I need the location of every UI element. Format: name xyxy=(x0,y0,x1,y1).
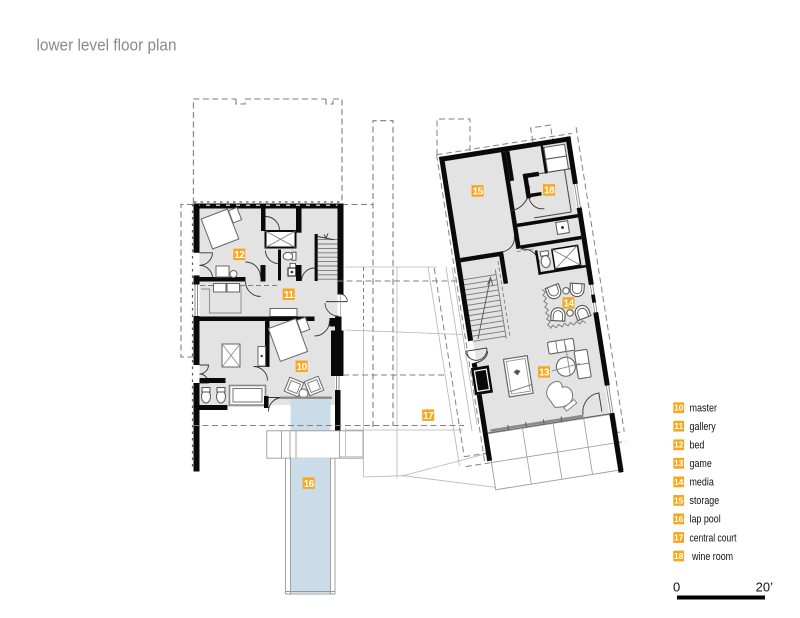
svg-text:game: game xyxy=(690,458,712,470)
svg-text:13: 13 xyxy=(674,458,684,468)
svg-text:gallery: gallery xyxy=(690,421,717,433)
svg-text:11: 11 xyxy=(284,290,295,301)
svg-text:18: 18 xyxy=(544,186,555,197)
svg-text:10: 10 xyxy=(297,362,308,373)
svg-text:14: 14 xyxy=(674,477,684,487)
svg-text:storage: storage xyxy=(690,495,720,507)
svg-text:12: 12 xyxy=(674,440,684,450)
svg-text:0: 0 xyxy=(673,580,680,595)
svg-text:15: 15 xyxy=(674,495,684,505)
svg-text:central court: central court xyxy=(690,532,737,544)
svg-text:17: 17 xyxy=(674,532,684,542)
svg-text:16: 16 xyxy=(304,479,315,490)
svg-text:10: 10 xyxy=(674,403,684,413)
svg-text:master: master xyxy=(690,403,718,415)
svg-text:15: 15 xyxy=(472,187,483,198)
svg-text:20’: 20’ xyxy=(756,580,773,595)
svg-text:lap pool: lap pool xyxy=(690,514,721,526)
svg-text:wine room: wine room xyxy=(691,551,733,563)
svg-text:lower level floor plan: lower level floor plan xyxy=(37,37,177,55)
svg-text:12: 12 xyxy=(234,250,245,261)
svg-text:13: 13 xyxy=(539,368,550,379)
svg-text:bed: bed xyxy=(690,440,705,452)
svg-text:17: 17 xyxy=(423,411,434,422)
svg-text:16: 16 xyxy=(674,514,684,524)
svg-text:media: media xyxy=(690,477,715,489)
svg-text:18: 18 xyxy=(674,551,684,561)
svg-text:11: 11 xyxy=(674,421,683,431)
svg-text:14: 14 xyxy=(563,299,574,310)
